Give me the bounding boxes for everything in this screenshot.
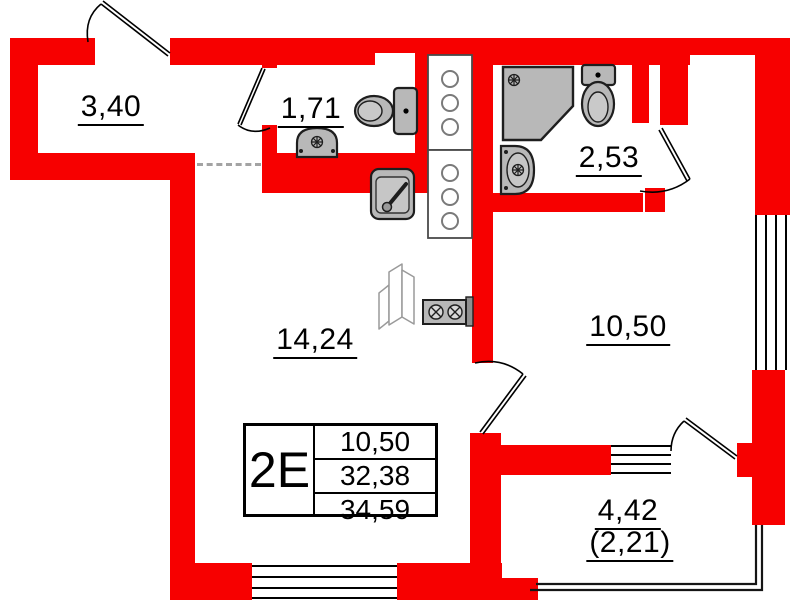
toilet-2-icon (582, 65, 615, 126)
door-bathroom-large (640, 128, 690, 192)
vent-shaft-icon (428, 55, 472, 238)
area-label-balcony-bottom-reduced: (2,21) (586, 526, 673, 560)
kitchen-sink-icon (371, 169, 414, 219)
door-balcony-bottom (671, 418, 737, 459)
door-balcony-top (87, 1, 170, 56)
floor-plan: 3,40 1,71 2,53 14,24 10,50 4,42 (2,21) 2… (0, 0, 800, 600)
area-label-balcony-bottom: 4,42 (595, 494, 661, 528)
area-label-bedroom: 10,50 (586, 310, 670, 344)
unit-living-area: 10,50 (315, 426, 435, 458)
area-label-bathroom-large: 2,53 (576, 141, 642, 175)
unit-type-cell: 2Е (246, 426, 315, 514)
sink-2-icon (501, 146, 534, 194)
door-bathroom-small (238, 68, 270, 131)
area-label-main-room: 14,24 (273, 323, 357, 357)
folding-door-icon (379, 264, 414, 329)
door-bedroom (475, 361, 526, 434)
unit-area: 32,38 (315, 458, 435, 492)
unit-areas-column: 10,50 32,38 34,59 (315, 426, 435, 514)
window-balcony (611, 446, 671, 473)
stove-icon (423, 297, 473, 326)
sink-icon (297, 128, 337, 157)
area-label-bathroom-small: 1,71 (278, 92, 344, 126)
shower-icon (503, 67, 573, 140)
area-label-balcony-top: 3,40 (78, 90, 144, 124)
window-bottom (252, 566, 397, 598)
toilet-icon (355, 88, 417, 134)
window-right (756, 215, 786, 370)
unit-total-area: 34,59 (315, 492, 435, 526)
unit-info-table: 2Е 10,50 32,38 34,59 (243, 423, 438, 517)
